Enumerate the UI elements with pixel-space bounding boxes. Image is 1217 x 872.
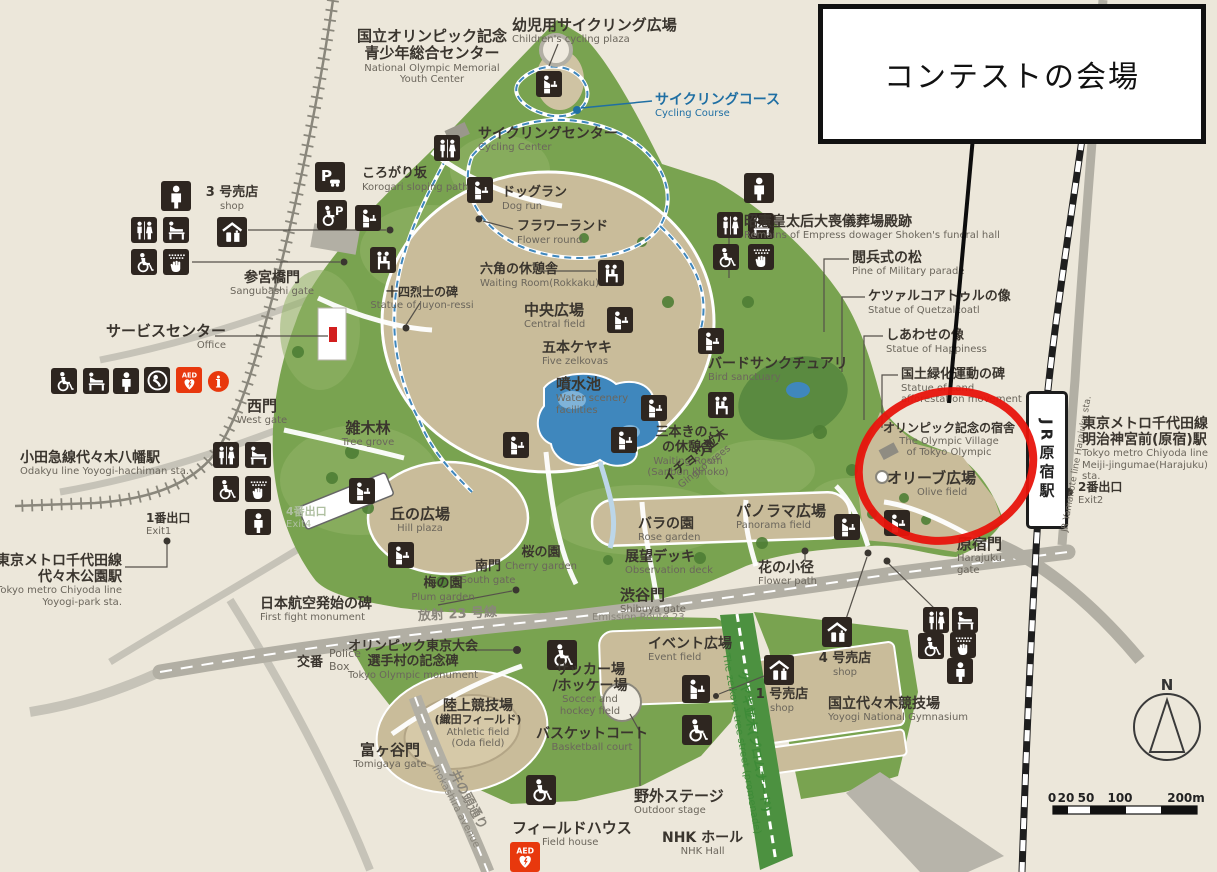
- map-label: 放射 23 号線: [418, 606, 498, 625]
- map-label: 富ヶ谷門Tomigaya gate: [353, 742, 426, 771]
- map-label: NHK ホールNHK Hall: [662, 830, 743, 858]
- basketball-court-area: [747, 729, 907, 777]
- info-icon: [205, 368, 231, 394]
- map-label: フィールドハウスField house: [512, 820, 632, 849]
- map-label: 西門West gate: [237, 398, 287, 427]
- map-label: 花の小径Flower path: [758, 560, 817, 588]
- callout-box: コンテストの会場: [818, 4, 1206, 144]
- hands-icon: [950, 632, 976, 658]
- fountain-icon: [682, 675, 710, 703]
- scale-tick-label: 20: [1058, 791, 1075, 805]
- map-label: 1 号売店shop: [756, 688, 809, 714]
- map-label: 六角の休憩舎Waiting Room(Rokkaku): [480, 263, 599, 289]
- map-label: 小田急線代々木八幡駅Odakyu line Yoyogi-hachiman st…: [20, 450, 189, 478]
- acc-icon: [918, 633, 944, 659]
- fountain-icon: [834, 514, 860, 540]
- person-icon: [947, 658, 973, 684]
- map-label: 1番出口Exit1: [146, 512, 190, 537]
- map-label: 東京メトロ千代田線 代々木公園駅Tokyo metro Chiyoda line…: [0, 553, 122, 608]
- bench-icon: [598, 260, 624, 286]
- jr-harajuku-station-box: JR原宿駅: [1026, 391, 1068, 529]
- fountain-icon: [503, 432, 529, 458]
- map-label: 国土緑化運動の碑Statue of Land afforestation mov…: [901, 368, 1022, 406]
- map-label: 昭憲皇太后大喪儀葬場殿跡Remains of Empress dowager S…: [744, 214, 1000, 242]
- map-label: 国立代々木競技場Yoyogi National Gymnasium: [828, 696, 968, 724]
- scale-tick-label: 100: [1107, 791, 1132, 805]
- nursing-icon: [144, 367, 170, 393]
- map-label: サッカー場 /ホッケー場Soccer and hockey field: [552, 662, 627, 717]
- map-label: バスケットコートBasketball court: [536, 726, 648, 754]
- park-map: 国立オリンピック記念 青少年総合センターNational Olympic Mem…: [0, 0, 1217, 872]
- map-label: 日本航空発始の碑First fight monument: [260, 596, 372, 624]
- fountain-icon: [467, 177, 493, 203]
- person-icon: [245, 509, 271, 535]
- compass-rose: [1134, 694, 1200, 760]
- map-label: 3 号売店shop: [206, 186, 259, 212]
- toilets-icon: [434, 135, 460, 161]
- fountain-icon: [536, 71, 562, 97]
- map-label: 閲兵式の松Pine of Military parade: [852, 250, 965, 278]
- hands-icon: [163, 249, 189, 275]
- map-label: 野外ステージOutdoor stage: [634, 788, 724, 817]
- toilets-icon: [213, 442, 239, 468]
- acc-icon: [713, 244, 739, 270]
- hands-icon: [748, 244, 774, 270]
- baby-icon: [952, 607, 978, 633]
- scale-tick-label: 0: [1048, 791, 1056, 805]
- map-label: オリンピック記念の宿舎The Olympic Village of Tokyo …: [883, 422, 1015, 459]
- map-label: バラの園Rose garden: [638, 516, 700, 544]
- map-label: 交番: [297, 656, 323, 671]
- fountain-icon: [641, 395, 667, 421]
- compass-north-label: N: [1152, 676, 1182, 694]
- jr-harajuku-station-label: JR原宿駅: [1037, 419, 1058, 501]
- fountain-icon: [607, 307, 633, 333]
- shop-icon: [217, 217, 247, 247]
- aed-icon: [176, 367, 202, 393]
- fountain-icon: [349, 478, 375, 504]
- acc-icon: [213, 476, 239, 502]
- map-label: サイクリングコースCycling Course: [655, 92, 780, 120]
- parking-acc-icon: [317, 200, 347, 230]
- map-label: 4 号売店shop: [819, 652, 872, 678]
- map-label: 井の頭通りInokashira avenue: [429, 756, 495, 850]
- map-label: しあわせの像Statue of Happiness: [886, 329, 987, 355]
- map-label: 五本ケヤキFive zelkovas: [542, 340, 612, 368]
- toilets-icon: [923, 607, 949, 633]
- bench-icon: [708, 392, 734, 418]
- bench-icon: [370, 247, 396, 273]
- map-label: バードサンクチュアリBird sanctuary: [708, 356, 848, 384]
- map-label: サービスセンターOffice: [106, 323, 226, 352]
- shop-icon: [764, 655, 794, 685]
- toilets-icon: [717, 212, 743, 238]
- map-label: オリンピック東京大会 選手村の記念碑Tokyo Olympic monument: [348, 640, 478, 681]
- person-icon: [744, 173, 774, 203]
- baby-icon: [83, 368, 109, 394]
- map-label: 原宿門Harajuku gate: [957, 536, 1002, 576]
- scale-tick-label: 200m: [1167, 791, 1205, 805]
- map-label: Emission Route 23: [592, 612, 685, 624]
- toilets-icon: [131, 217, 157, 243]
- map-label: 雑木林Tree grove: [342, 420, 394, 449]
- fountain-icon: [611, 427, 637, 453]
- acc-icon: [131, 249, 157, 275]
- map-label: 参宮橋門Sangubashi gate: [230, 270, 314, 298]
- fountain-icon: [698, 328, 724, 354]
- map-label: オリーブ広場Olive field: [887, 470, 976, 499]
- scale-bar: [1053, 806, 1197, 814]
- map-label: 展望デッキObservation deck: [625, 549, 713, 577]
- person-icon: [161, 181, 191, 211]
- map-label: 梅の園Plum garden: [411, 577, 474, 603]
- callout-text: コンテストの会場: [884, 52, 1140, 96]
- map-label: ケツァルコアトゥルの像Statue of Quetzalcoatl: [868, 290, 1011, 316]
- map-label: 十四烈士の碑Statue of Juyon-ressi: [370, 286, 473, 311]
- baby-icon: [163, 217, 189, 243]
- baby-icon: [245, 442, 271, 468]
- parking-icon: [315, 162, 345, 192]
- person-icon: [113, 368, 139, 394]
- map-label: 中央広場Central field: [524, 302, 585, 331]
- hands-icon: [245, 476, 271, 502]
- map-label: フラワーランドFlower round: [517, 220, 608, 246]
- map-label: サイクリングセンターCycling Center: [478, 126, 618, 154]
- scale-tick-label: 50: [1078, 791, 1095, 805]
- map-label: パノラマ広場Panorama field: [736, 503, 826, 532]
- fountain-icon: [355, 205, 381, 231]
- map-label: 丘の広場Hill plaza: [390, 506, 450, 535]
- map-label: 4番出口Exit4: [286, 506, 327, 530]
- fountain-icon: [388, 542, 414, 568]
- acc-icon: [51, 368, 77, 394]
- map-label: 幼児用サイクリング広場Children's cycling plaza: [512, 17, 677, 46]
- stream-dashed: [394, 148, 472, 492]
- map-label: ころがり坂Korogari sloping path: [362, 167, 469, 193]
- fountain-icon: [884, 510, 910, 536]
- map-label: 陸上競技場(織田フィールド)Athletic field (Oda field): [435, 698, 522, 750]
- shop-icon: [822, 617, 852, 647]
- map-label: 2番出口Exit2: [1078, 481, 1122, 506]
- map-label: イベント広場Event field: [648, 636, 732, 664]
- map-label: 国立オリンピック記念 青少年総合センターNational Olympic Mem…: [357, 28, 507, 86]
- acc-icon: [682, 715, 712, 745]
- map-label: 東京メトロ千代田線 明治神宮前(原宿)駅Tokyo metro Chiyoda …: [1082, 416, 1217, 483]
- map-label: ドッグランDog run: [502, 186, 567, 212]
- acc-icon: [526, 775, 556, 805]
- map-label: 桜の園Cherry garden: [505, 546, 577, 572]
- map-label: 噴水池Water scenery facilities: [556, 376, 628, 416]
